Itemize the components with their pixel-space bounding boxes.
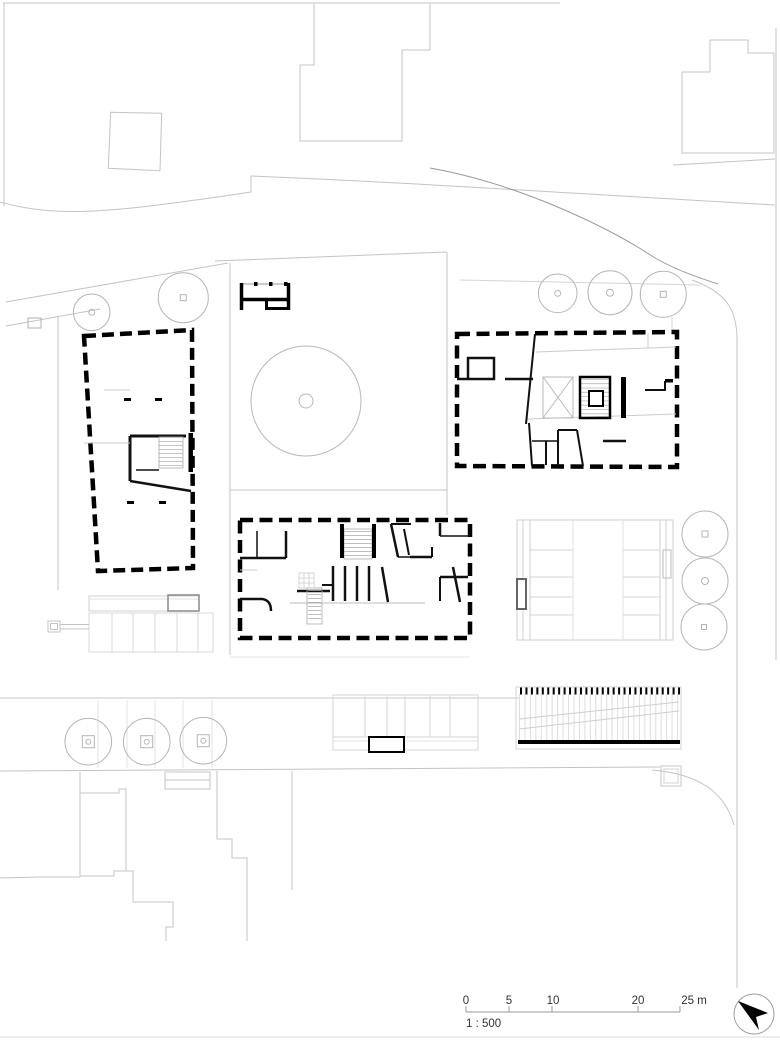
field-outline (517, 520, 673, 640)
tree (73, 294, 110, 331)
context-building-northeast (682, 40, 774, 153)
building-west-perimeter (84, 330, 193, 571)
plaza-center (299, 394, 313, 408)
scale-label-5: 5 (506, 995, 512, 1007)
context-block-southwest-5 (0, 877, 80, 878)
field-markings (530, 550, 660, 615)
tree (538, 274, 577, 313)
solid-wall (665, 379, 673, 383)
tree (681, 604, 727, 650)
scale-label-10: 10 (547, 995, 560, 1007)
path-line-northeast (460, 280, 700, 285)
building-northeast-perimeter (457, 332, 677, 467)
scale-ratio: 1 : 500 (466, 1018, 501, 1030)
context-block-southwest-2 (80, 789, 126, 871)
road-edge-west (0, 176, 775, 212)
circular-plaza (251, 346, 361, 456)
scale-label-0: 0 (463, 995, 469, 1007)
context-building-northwest (108, 112, 161, 170)
scale-ticks (466, 1006, 680, 1012)
context-fence-northeast (673, 159, 775, 165)
column (269, 282, 273, 286)
sidewalk-bays (98, 700, 212, 768)
tree (682, 511, 728, 557)
column (159, 501, 166, 504)
scale-label-20: 20 (632, 995, 645, 1007)
building-northeast (457, 332, 677, 467)
utility-box-inner (51, 624, 58, 630)
column (127, 501, 134, 504)
solid-wall (340, 524, 344, 558)
tree (588, 271, 632, 315)
street-line-lower (0, 767, 660, 771)
ramp-line (519, 702, 679, 719)
column (124, 398, 131, 401)
plaza-circle (251, 346, 361, 456)
canopy (333, 695, 478, 752)
road-manhole-inner (664, 769, 678, 783)
solid-wall (621, 377, 626, 418)
solid-wall (189, 433, 194, 472)
parking-bays (89, 613, 213, 652)
site-plan-sheet: 0 5 10 20 25 m 1 : 500 (0, 0, 780, 1040)
building-south-perimeter (240, 520, 470, 638)
solid-wall (372, 524, 376, 558)
shelter-dark-unit (168, 595, 199, 611)
tree-with-planter (180, 717, 227, 764)
column (155, 398, 162, 401)
canopy-kiosk (369, 737, 404, 752)
building-west (84, 330, 193, 571)
tree (158, 273, 208, 323)
tree-with-planter (65, 718, 112, 765)
boundary-marker-flag (28, 318, 41, 328)
tree (640, 271, 686, 317)
utility-box-outer (48, 621, 60, 632)
context-block-southwest-3 (217, 771, 247, 941)
north-arrow-icon (734, 994, 774, 1034)
road-curve-east (692, 280, 737, 988)
road-curve-dark (430, 168, 718, 284)
field-goal (517, 579, 526, 609)
boundary-diagonal-2 (6, 309, 100, 326)
parking-strip (48, 595, 213, 652)
plaza-boundary-top (215, 252, 447, 261)
field-bench (663, 550, 671, 578)
context-building-north (300, 4, 430, 141)
building-south (240, 520, 470, 638)
site-plan-drawing: 0 5 10 20 25 m 1 : 500 (0, 0, 780, 1040)
pavilion (240, 282, 290, 310)
scale-label-25m: 25 m (681, 995, 707, 1007)
tree (682, 558, 728, 604)
scale-bar: 0 5 10 20 25 m 1 : 500 (463, 995, 707, 1030)
column (254, 282, 258, 286)
shelter-outline (89, 596, 199, 611)
external-stair (516, 687, 681, 749)
tree-with-planter (123, 718, 170, 765)
ramp-line (519, 711, 679, 729)
sports-field (517, 520, 673, 640)
boundary-diagonal-1 (6, 263, 228, 302)
